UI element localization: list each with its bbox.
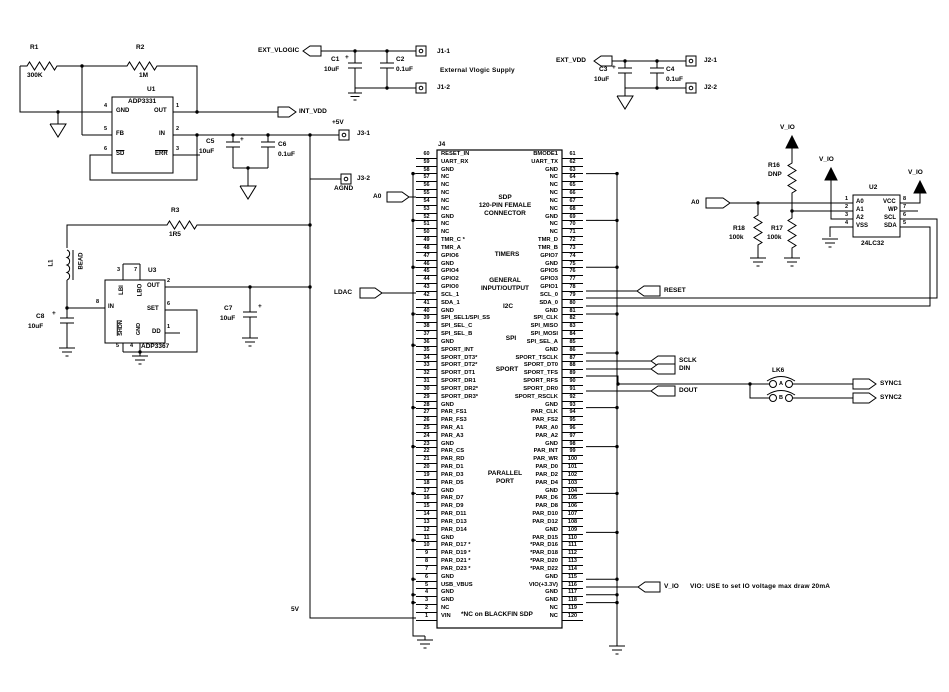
pin-number: 91: [562, 386, 583, 394]
u2-num-5: 5: [903, 220, 906, 226]
pin-label: NC: [550, 182, 562, 190]
j4-right-pin-row: PAR_D8 106: [422, 503, 583, 511]
cap-c5: [226, 135, 240, 168]
u3-lbi-lbo: [123, 264, 140, 280]
pin-number: 119: [562, 605, 583, 613]
j4-right-pin-row: BMODE1 61: [422, 151, 583, 159]
j4-right-pin-row: NC 119: [422, 605, 583, 613]
j4-right-pin-row: UART_TX 62: [422, 159, 583, 167]
ext-vlogic-tag: [303, 46, 321, 56]
u2-pin-scl: SCL: [884, 215, 896, 221]
j4-right-pin-row: PAR_D4 103: [422, 480, 583, 488]
u3-num-5: 5: [116, 343, 119, 349]
a0-right-label: A0: [691, 199, 699, 206]
pin-label: GND: [545, 214, 562, 222]
u1-pin-fb: FB: [116, 131, 124, 137]
pad-j1-1: [416, 46, 426, 56]
j4-right-pin-row: PAR_D0 101: [422, 464, 583, 472]
lk6-a-pad2: [786, 381, 793, 388]
r18-value: 100k: [729, 234, 743, 241]
j4-right-pin-row: GND 86: [422, 347, 583, 355]
cap-c6: [261, 135, 275, 168]
pin-number: 89: [562, 370, 583, 378]
pin-number: 90: [562, 378, 583, 386]
wire-r1-r2: [20, 62, 197, 112]
u1-num-3: 3: [176, 146, 179, 152]
pin-number: 103: [562, 480, 583, 488]
j4-right-pin-column: BMODE1 61 UART_TX 62 GND 63 NC 64 NC 65 …: [422, 151, 583, 621]
right-gnd-rail: [609, 173, 625, 654]
r1-value: 300K: [27, 72, 43, 79]
pin-number: 74: [562, 253, 583, 261]
pin-label: NC: [550, 206, 562, 214]
pin-number: 106: [562, 503, 583, 511]
j4-right-pin-row: SDA_0 80: [422, 300, 583, 308]
j4-right-pin-row: *PAR_D22 114: [422, 566, 583, 574]
c7-value: 10uF: [220, 315, 235, 322]
pin-label: PAR_D6: [536, 495, 562, 503]
pin-label: GND: [545, 167, 562, 175]
j4-right-pin-row: GND 109: [422, 527, 583, 535]
pin-label: PAR_D10: [532, 511, 562, 519]
pin-number: 95: [562, 417, 583, 425]
schematic-page: R1 300K R2 1M U1 ADP3331 GND OUT FB IN S…: [0, 0, 949, 692]
c2-ref: C2: [396, 56, 404, 63]
pin-number: 115: [562, 574, 583, 582]
pin-number: 98: [562, 441, 583, 449]
pin-label: SPORT_RSCLK: [515, 394, 562, 402]
pin-number: 87: [562, 355, 583, 363]
vio-flag-3: [914, 181, 926, 193]
j4-right-pin-row: TMR_D 72: [422, 237, 583, 245]
r2-ref: R2: [136, 44, 144, 51]
int-vdd-label: INT_VDD: [299, 108, 327, 115]
j4-right-pin-row: GND 115: [422, 574, 583, 582]
reset-label: RESET: [664, 287, 686, 294]
r18-ref: R18: [733, 225, 745, 232]
c1-ref: C1: [331, 56, 339, 63]
u3-num-3: 3: [117, 267, 120, 273]
u2-num-2: 2: [845, 204, 848, 210]
int-vdd-tag: [278, 107, 296, 117]
pin-number: 117: [562, 589, 583, 597]
pin-number: 92: [562, 394, 583, 402]
ext-supply-note: External Vlogic Supply: [440, 67, 515, 74]
pin-label: SPORT_RFS: [523, 378, 562, 386]
j4-right-pin-row: PAR_FS2 95: [422, 417, 583, 425]
u3-pin-shdn: SHDN: [118, 320, 124, 336]
j4-right-pin-row: NC 120: [422, 613, 583, 621]
wire-r17-gnd: [784, 211, 800, 266]
r1-ref: R1: [30, 44, 38, 51]
u3-num-8: 8: [96, 299, 99, 305]
u1-part: ADP3331: [128, 98, 156, 105]
pin-label: GND: [545, 597, 562, 605]
a0-right-tag: [706, 198, 730, 208]
pad-j2-2: [686, 83, 696, 93]
pad-j3-1: [339, 130, 349, 140]
j4-right-pin-row: NC 68: [422, 206, 583, 214]
ldac-label: LDAC: [334, 289, 352, 296]
j4-right-pin-row: TMR_B 73: [422, 245, 583, 253]
j4-right-pin-row: SPORT_RFS 90: [422, 378, 583, 386]
pin-number: 61: [562, 151, 583, 159]
u2-num-7: 7: [903, 204, 906, 210]
j3-2-label: J3-2: [357, 175, 370, 182]
pin-number: 68: [562, 206, 583, 214]
vio-flag-1: [786, 136, 798, 148]
j4-right-pin-row: SPORT_TFS 89: [422, 370, 583, 378]
pin-number: 81: [562, 308, 583, 316]
sync1-label: SYNC1: [880, 380, 902, 387]
u3-pin-out: OUT: [147, 283, 160, 289]
pin-number: 84: [562, 331, 583, 339]
pin-number: 77: [562, 276, 583, 284]
reset-tag: [637, 286, 660, 296]
5v-label: 5V: [291, 606, 299, 613]
pin-label: GND: [545, 441, 562, 449]
sync1-tag: [853, 379, 876, 389]
j4-right-pin-row: GPIO1 78: [422, 284, 583, 292]
u2-pin-sda: SDA: [884, 223, 897, 229]
pin-number: 80: [562, 300, 583, 308]
pin-label: SPI_MISO: [531, 323, 562, 331]
c8-value: 10uF: [28, 323, 43, 330]
pin-label: NC: [550, 229, 562, 237]
pin-number: 97: [562, 433, 583, 441]
pin-label: *PAR_D20: [530, 558, 562, 566]
j4-right-pin-row: PAR_CLK 94: [422, 409, 583, 417]
j4-right-pin-row: SCL_0 79: [422, 292, 583, 300]
c5-value: 10uF: [199, 148, 214, 155]
lk6-a-label: A: [779, 381, 783, 387]
j4-right-pin-row: PAR_WR 100: [422, 456, 583, 464]
u2-num-3: 3: [845, 212, 848, 218]
u1-num-5: 5: [104, 126, 107, 132]
pin-number: 66: [562, 190, 583, 198]
ldac-tag: [360, 288, 382, 298]
pin-label: NC: [550, 198, 562, 206]
sclk-label: SCLK: [679, 357, 697, 364]
c3-ref: C3: [599, 66, 607, 73]
sync2-label: SYNC2: [880, 394, 902, 401]
r17-value: 100k: [767, 234, 781, 241]
pin-number: 75: [562, 261, 583, 269]
pin-label: *PAR_D18: [530, 550, 562, 558]
vio-bottom-tag: [638, 582, 660, 592]
j4-right-pin-row: *PAR_D16 111: [422, 542, 583, 550]
j4-right-pin-row: NC 71: [422, 229, 583, 237]
pin-number: 79: [562, 292, 583, 300]
pin-number: 110: [562, 535, 583, 543]
j4-right-pin-row: SPORT_DT0 88: [422, 362, 583, 370]
pin-label: SPORT_TFS: [524, 370, 562, 378]
j4-right-pin-row: SPORT_DR0 91: [422, 386, 583, 394]
j4-right-pin-row: PAR_D12 108: [422, 519, 583, 527]
r17-ref: R17: [771, 225, 783, 232]
pin-number: 67: [562, 198, 583, 206]
c1-plus: +: [345, 54, 349, 61]
pin-number: 86: [562, 347, 583, 355]
u1-pin-out: OUT: [154, 108, 167, 114]
lk6-b-label: B: [779, 395, 783, 401]
u2-ref: U2: [869, 184, 877, 191]
pin-label: PAR_D2: [536, 472, 562, 480]
u1-num-6: 6: [104, 146, 107, 152]
pin-number: 111: [562, 542, 583, 550]
pin-label: GND: [545, 261, 562, 269]
j4-right-pin-row: GPIO7 74: [422, 253, 583, 261]
j4-right-pin-row: PAR_D2 102: [422, 472, 583, 480]
pin-label: GND: [545, 347, 562, 355]
j4-right-pin-row: PAR_D15 110: [422, 535, 583, 543]
u3-num-7: 7: [134, 267, 137, 273]
u2-pin-a1: A1: [856, 207, 864, 213]
pin-label: PAR_INT: [534, 448, 562, 456]
gnd-bars-c1: [348, 88, 362, 100]
pin-label: TMR_B: [538, 245, 562, 253]
pin-label: GND: [545, 574, 562, 582]
j4-right-pin-row: PAR_D10 107: [422, 511, 583, 519]
u3-pin-dd: DD: [152, 329, 161, 335]
pin-label: UART_TX: [531, 159, 562, 167]
lk6-ref: LK6: [772, 367, 784, 374]
u2-num-6: 6: [903, 212, 906, 218]
u1-num-2: 2: [176, 126, 179, 132]
pin-label: GPIO3: [540, 276, 562, 284]
lk6-b-pad1: [770, 395, 777, 402]
j3-1-label: J3-1: [357, 130, 370, 137]
pin-label: SCL_0: [540, 292, 562, 300]
gnd-triangle-c3: [617, 88, 633, 109]
power-flags: [786, 136, 926, 193]
j4-right-pin-row: SPORT_TSCLK 87: [422, 355, 583, 363]
vio-flag-1-label: V_IO: [780, 124, 795, 131]
pin-number: 73: [562, 245, 583, 253]
c5-ref: C5: [206, 138, 214, 145]
u2-pin-vss: VSS: [856, 223, 868, 229]
pin-label: NC: [550, 605, 562, 613]
pin-number: 65: [562, 182, 583, 190]
pin-label: GND: [545, 402, 562, 410]
j4-right-pin-row: SPI_SEL_A 85: [422, 339, 583, 347]
c5-plus: +: [240, 136, 244, 143]
pad-j1-2: [416, 83, 426, 93]
pin-label: TMR_D: [538, 237, 562, 245]
pin-label: PAR_D4: [536, 480, 562, 488]
pin-label: GND: [545, 527, 562, 535]
u1-pin-sd: SD: [116, 151, 124, 157]
j4-right-pin-row: GND 75: [422, 261, 583, 269]
c2-value: 0.1uF: [396, 66, 413, 73]
ext-vdd-label: EXT_VDD: [556, 57, 586, 64]
pin-label: VIO(+3.3V): [529, 582, 562, 590]
pin-number: 113: [562, 558, 583, 566]
u2-part: 24LC32: [861, 240, 884, 247]
j4-right-pin-row: SPI_CLK 82: [422, 315, 583, 323]
pin-label: PAR_FS2: [532, 417, 562, 425]
u1-pin-in: IN: [159, 131, 165, 137]
a0-left-tag: [387, 192, 409, 202]
u1-pin-err: ERR: [155, 151, 168, 157]
pin-number: 76: [562, 268, 583, 276]
wire-u3-set-gnd: [123, 310, 197, 364]
wire-5v-spine: [310, 135, 416, 618]
sync2-tag: [853, 393, 876, 403]
c1-value: 10uF: [324, 66, 339, 73]
j1-1-label: J1-1: [437, 48, 450, 55]
c6-value: 0.1uF: [278, 151, 295, 158]
pin-number: 96: [562, 425, 583, 433]
wire-sync-out: [793, 384, 854, 398]
pin-number: 99: [562, 448, 583, 456]
pin-label: PAR_A2: [536, 433, 562, 441]
u3-num-1: 1: [167, 324, 170, 330]
pin-number: 114: [562, 566, 583, 574]
pin-label: SPI_CLK: [534, 315, 562, 323]
pin-label: PAR_WR: [533, 456, 562, 464]
c7-plus: +: [258, 303, 262, 310]
din-label: DIN: [679, 365, 690, 372]
din-tag: [651, 364, 675, 374]
u2-num-1: 1: [845, 196, 848, 202]
j4-right-pin-row: GPIO3 77: [422, 276, 583, 284]
vio-flag-2: [825, 168, 837, 180]
u2-pin-a2: A2: [856, 215, 864, 221]
pin-number: 112: [562, 550, 583, 558]
pin-number: 78: [562, 284, 583, 292]
pin-label: PAR_D15: [532, 535, 562, 543]
u3-part: ADP3367: [141, 343, 169, 350]
right-gnd-stubs: [586, 174, 617, 603]
plus5v-label: +5V: [332, 119, 344, 126]
pin-number: 62: [562, 159, 583, 167]
pin-label: GPIO7: [540, 253, 562, 261]
pin-number: 82: [562, 315, 583, 323]
j4-right-pin-row: PAR_D6 105: [422, 495, 583, 503]
j4-right-pin-row: NC 70: [422, 221, 583, 229]
pin-number: 72: [562, 237, 583, 245]
pin-number: 108: [562, 519, 583, 527]
pad-j2-1: [686, 56, 696, 66]
j4-right-pin-row: GPIO5 76: [422, 268, 583, 276]
pin-number: 105: [562, 495, 583, 503]
u1-ref: U1: [147, 86, 155, 93]
pin-label: *PAR_D22: [530, 566, 562, 574]
l1-value: BEAD: [79, 252, 85, 269]
j4-right-pin-row: *PAR_D20 113: [422, 558, 583, 566]
j4-right-pin-row: SPI_MISO 83: [422, 323, 583, 331]
c7-ref: C7: [224, 305, 232, 312]
pin-label: GPIO1: [540, 284, 562, 292]
pin-label: SPI_MOSI: [531, 331, 562, 339]
gnd-triangle-u1: [50, 112, 66, 137]
l1-ref: L1: [49, 259, 55, 266]
pin-number: 101: [562, 464, 583, 472]
u3-ref: U3: [148, 267, 156, 274]
pin-label: PAR_A0: [536, 425, 562, 433]
c3-value: 10uF: [594, 76, 609, 83]
pin-label: SPORT_DT0: [524, 362, 562, 370]
pin-number: 116: [562, 582, 583, 590]
pin-label: SPI_SEL_A: [527, 339, 562, 347]
pin-number: 118: [562, 597, 583, 605]
wire-r18-gnd: [750, 203, 766, 266]
pin-label: GPIO5: [540, 268, 562, 276]
ext-vdd-tag: [594, 56, 612, 66]
pin-number: 83: [562, 323, 583, 331]
ext-vlogic-label: EXT_VLOGIC: [258, 47, 299, 54]
pin-number: 70: [562, 221, 583, 229]
vio-note: VIO: USE to set IO voltage max draw 20mA: [690, 583, 830, 590]
j4-right-pin-row: GND 93: [422, 402, 583, 410]
j4-right-pin-row: *PAR_D18 112: [422, 550, 583, 558]
vio-bottom-label: V_IO: [664, 583, 679, 590]
pin-label: PAR_CLK: [531, 409, 562, 417]
j4-right-pin-row: NC 66: [422, 190, 583, 198]
c4-value: 0.1uF: [666, 76, 683, 83]
pin-number: 71: [562, 229, 583, 237]
u2-pin-vcc: VCC: [883, 199, 896, 205]
pin-label: SDA_0: [539, 300, 562, 308]
agnd-label: AGND: [334, 185, 353, 192]
pin-number: 64: [562, 174, 583, 182]
pin-number: 94: [562, 409, 583, 417]
inductor-l1: [67, 250, 73, 308]
wire-vss-gnd: [822, 227, 853, 247]
u2-pin-a0: A0: [856, 199, 864, 205]
pin-number: 120: [562, 613, 583, 621]
vio-flag-2-label: V_IO: [819, 156, 834, 163]
vdd-rail: [612, 61, 686, 88]
j4-right-pin-row: GND 117: [422, 589, 583, 597]
j4-right-pin-row: GND 63: [422, 167, 583, 175]
c8-plus: +: [52, 310, 56, 317]
pin-number: 109: [562, 527, 583, 535]
r16-value: DNP: [768, 171, 782, 178]
pin-number: 102: [562, 472, 583, 480]
pin-label: GND: [545, 308, 562, 316]
u1-pin-gnd: GND: [116, 108, 129, 114]
c6-ref: C6: [278, 141, 286, 148]
u3-pin-gnd: GND: [136, 323, 142, 335]
dout-tag: [651, 386, 675, 396]
a0-left-label: A0: [373, 193, 381, 200]
pin-label: NC: [550, 174, 562, 182]
r3-value: 1R5: [169, 231, 181, 238]
j4-right-pin-row: NC 65: [422, 182, 583, 190]
c4-ref: C4: [666, 66, 674, 73]
j4-right-pin-row: PAR_INT 99: [422, 448, 583, 456]
u3-pin-set: SET: [147, 306, 159, 312]
j4-right-pin-row: GND 98: [422, 441, 583, 449]
u1-num-4: 4: [104, 103, 107, 109]
j4-right-pin-row: NC 67: [422, 198, 583, 206]
pin-label: PAR_D8: [536, 503, 562, 511]
u3-num-2: 2: [167, 278, 170, 284]
pin-label: PAR_D0: [536, 464, 562, 472]
pin-label: NC: [550, 190, 562, 198]
j4-right-pin-row: GND 104: [422, 488, 583, 496]
c3-plus: +: [612, 64, 616, 71]
j1-2-label: J1-2: [437, 84, 450, 91]
pin-number: 88: [562, 362, 583, 370]
u3-pin-in: IN: [108, 304, 114, 310]
pin-label: NC: [550, 613, 562, 621]
lk6-a-pad1: [770, 381, 777, 388]
pin-label: NC: [550, 221, 562, 229]
pin-number: 93: [562, 402, 583, 410]
